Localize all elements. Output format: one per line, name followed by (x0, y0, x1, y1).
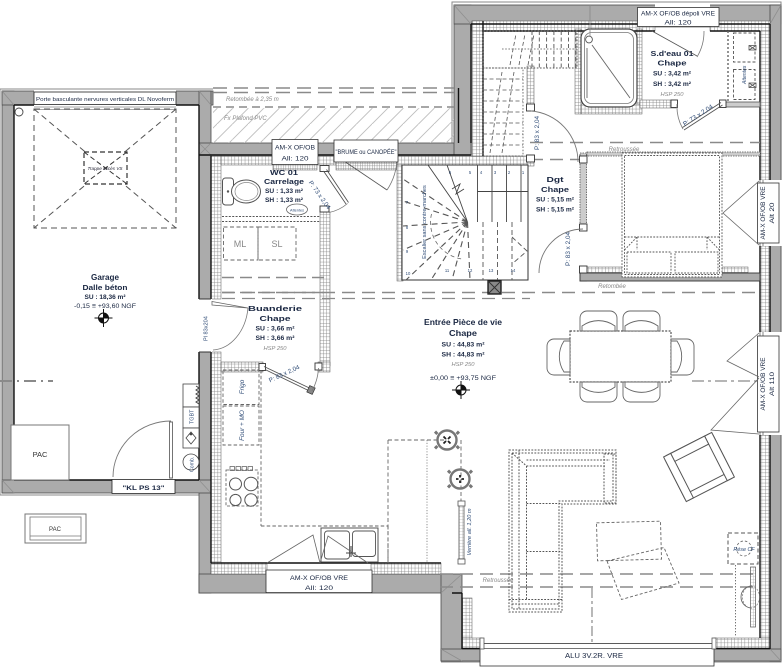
svg-text:-0,15 ≡ +93,60 NGF: -0,15 ≡ +93,60 NGF (74, 303, 136, 310)
svg-text:ALU 3V.2R. VRE: ALU 3V.2R. VRE (565, 653, 623, 660)
svg-text:Attentes: Attentes (742, 65, 748, 85)
svg-text:AM-X OF/OB VRE: AM-X OF/OB VRE (761, 358, 767, 411)
svg-text:Attentes: Attentes (290, 209, 304, 213)
svg-text:SH : 5,15 m²: SH : 5,15 m² (536, 207, 574, 214)
svg-text:Porte basculante nervures vert: Porte basculante nervures verticales DL … (36, 97, 174, 103)
svg-text:All: 120: All: 120 (305, 585, 333, 592)
svg-text:All: 120: All: 120 (665, 20, 693, 27)
svg-text:HSP 250: HSP 250 (264, 346, 288, 352)
svg-text:Alt 110: Alt 110 (770, 371, 776, 396)
svg-text:Buanderie: Buanderie (248, 304, 302, 313)
svg-text:Fx Plafond PVC: Fx Plafond PVC (224, 116, 267, 122)
svg-text:Comb.: Comb. (190, 457, 196, 472)
svg-text:SH : 44,83 m²: SH : 44,83 m² (442, 352, 485, 359)
svg-text:14: 14 (511, 268, 516, 273)
svg-text:Entrée Pièce de vie: Entrée Pièce de vie (424, 318, 502, 327)
svg-text:PAC: PAC (33, 450, 48, 459)
svg-text:11: 11 (445, 268, 450, 273)
svg-text:AM-X OF/OB VRE: AM-X OF/OB VRE (761, 187, 767, 240)
svg-text:SL: SL (271, 239, 282, 249)
svg-text:Chape: Chape (541, 185, 569, 194)
svg-text:Retombée à 2,35 m: Retombée à 2,35 m (226, 97, 279, 103)
svg-text:Chape: Chape (658, 59, 687, 68)
svg-text:AM-X OF/OB: AM-X OF/OB (275, 145, 315, 152)
svg-text:WC 01: WC 01 (270, 168, 299, 177)
svg-text:±0,00 ≡ +93,75 NGF: ±0,00 ≡ +93,75 NGF (430, 375, 496, 382)
svg-text:Pl 83x204: Pl 83x204 (204, 316, 210, 341)
svg-text:Carrelage: Carrelage (264, 177, 304, 186)
svg-text:AM-X OF/OB VRE: AM-X OF/OB VRE (290, 575, 348, 582)
svg-text:Trappe accès VS: Trappe accès VS (88, 166, 124, 171)
svg-text:13: 13 (489, 268, 494, 273)
svg-text:HSP 250: HSP 250 (661, 92, 685, 98)
svg-text:All: 120: All: 120 (282, 156, 310, 163)
svg-text:SH : 3,66 m²: SH : 3,66 m² (256, 335, 295, 342)
svg-text:"KL PS 13": "KL PS 13" (123, 485, 165, 492)
svg-text:10: 10 (406, 271, 411, 276)
svg-text:Dgt: Dgt (547, 175, 565, 184)
svg-text:Dalle béton: Dalle béton (83, 283, 128, 292)
svg-text:AM-X OF/OB dépoli VRE: AM-X OF/OB dépoli VRE (641, 11, 715, 18)
svg-text:Escalier sans contre-marches: Escalier sans contre-marches (422, 185, 428, 259)
svg-text:Chape: Chape (260, 314, 291, 323)
svg-text:SH : 1,33 m²: SH : 1,33 m² (265, 197, 303, 204)
svg-text:ML: ML (234, 239, 247, 249)
svg-text:SU : 3,66 m²: SU : 3,66 m² (256, 326, 295, 333)
svg-text:S.d'eau 01: S.d'eau 01 (651, 49, 695, 58)
svg-text:Retombée: Retombée (598, 284, 626, 290)
svg-text:PAC: PAC (49, 527, 62, 533)
svg-text:SH : 3,42 m²: SH : 3,42 m² (653, 81, 691, 88)
svg-text:P: 83 x 2,04: P: 83 x 2,04 (565, 232, 572, 267)
svg-text:SU : 3,42 m²: SU : 3,42 m² (653, 71, 691, 78)
svg-text:SU : 5,15 m²: SU : 5,15 m² (536, 197, 574, 204)
svg-text:P: 83 x 2,04: P: 83 x 2,04 (534, 116, 541, 151)
svg-text:TGBT: TGBT (190, 409, 196, 424)
svg-text:"BRUME ou CANOPÉE": "BRUME ou CANOPÉE" (336, 147, 398, 156)
svg-text:Frigo: Frigo (239, 379, 246, 394)
svg-text:SU : 44,83 m²: SU : 44,83 m² (442, 342, 485, 349)
svg-text:SU : 18,36 m²: SU : 18,36 m² (85, 294, 126, 301)
svg-text:12: 12 (468, 268, 473, 273)
svg-text:Rése CF: Rése CF (733, 547, 755, 553)
svg-text:SU : 1,33 m²: SU : 1,33 m² (265, 188, 303, 195)
svg-text:Verrière all. 1,20 m: Verrière all. 1,20 m (467, 508, 473, 555)
svg-text:HSP 250: HSP 250 (452, 362, 476, 368)
svg-text:Four + MO: Four + MO (239, 410, 246, 441)
svg-text:Chape: Chape (449, 329, 477, 338)
svg-text:Alt 20: Alt 20 (770, 202, 776, 224)
svg-text:Garage: Garage (91, 273, 119, 282)
